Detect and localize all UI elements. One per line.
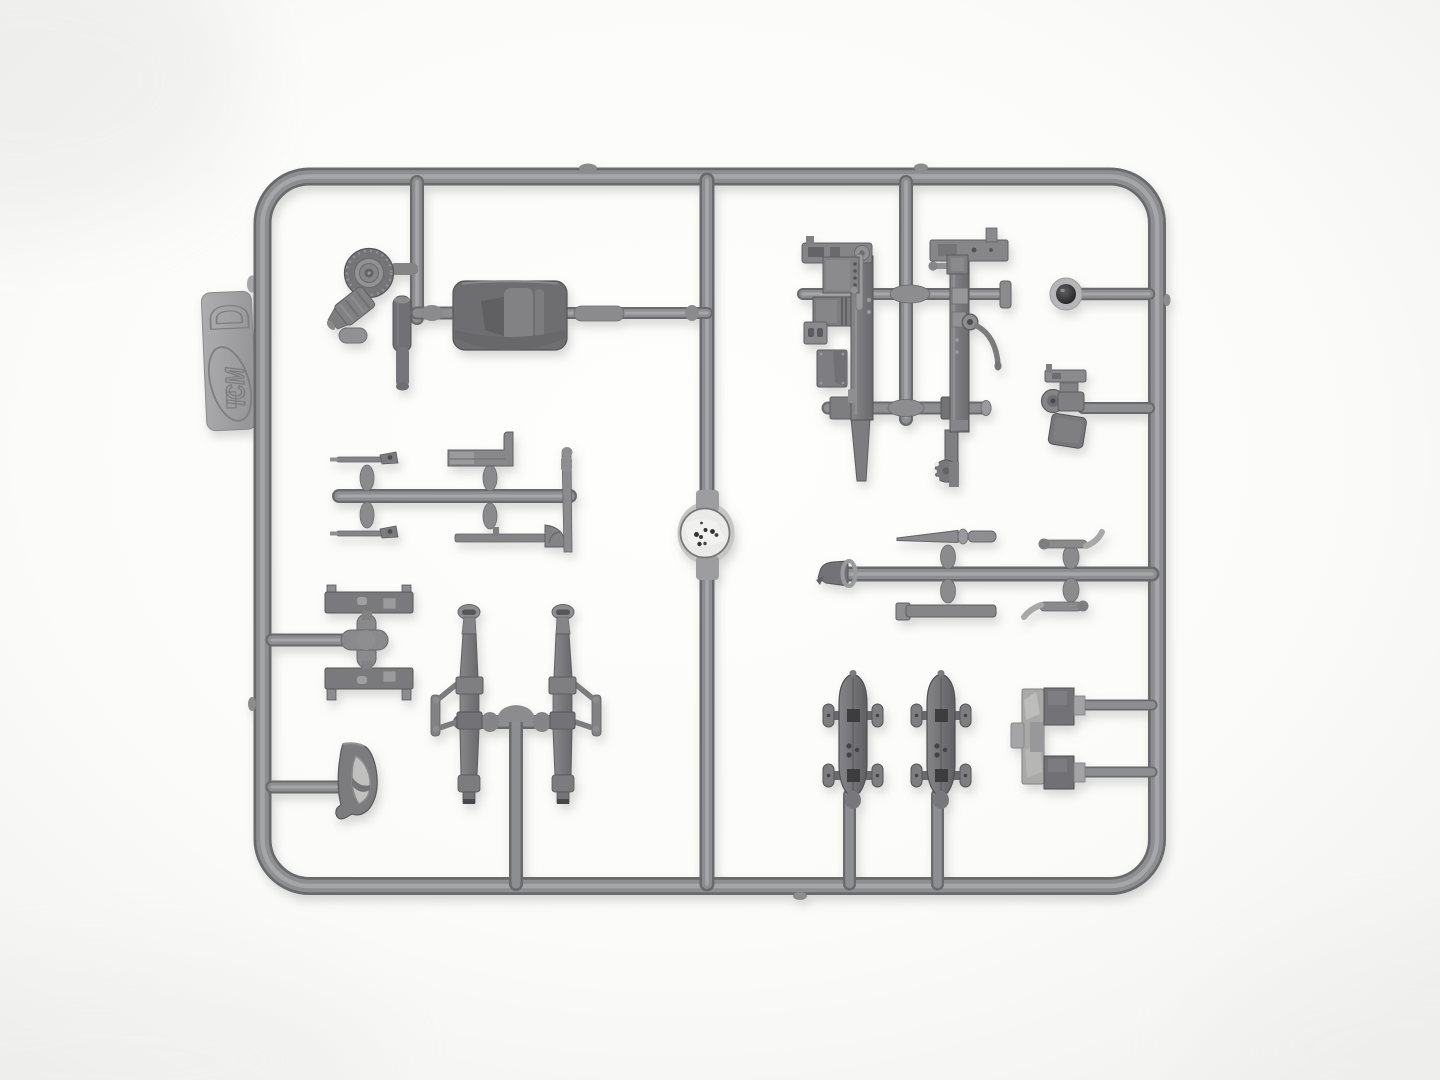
svg-text:D: D: [197, 303, 260, 333]
